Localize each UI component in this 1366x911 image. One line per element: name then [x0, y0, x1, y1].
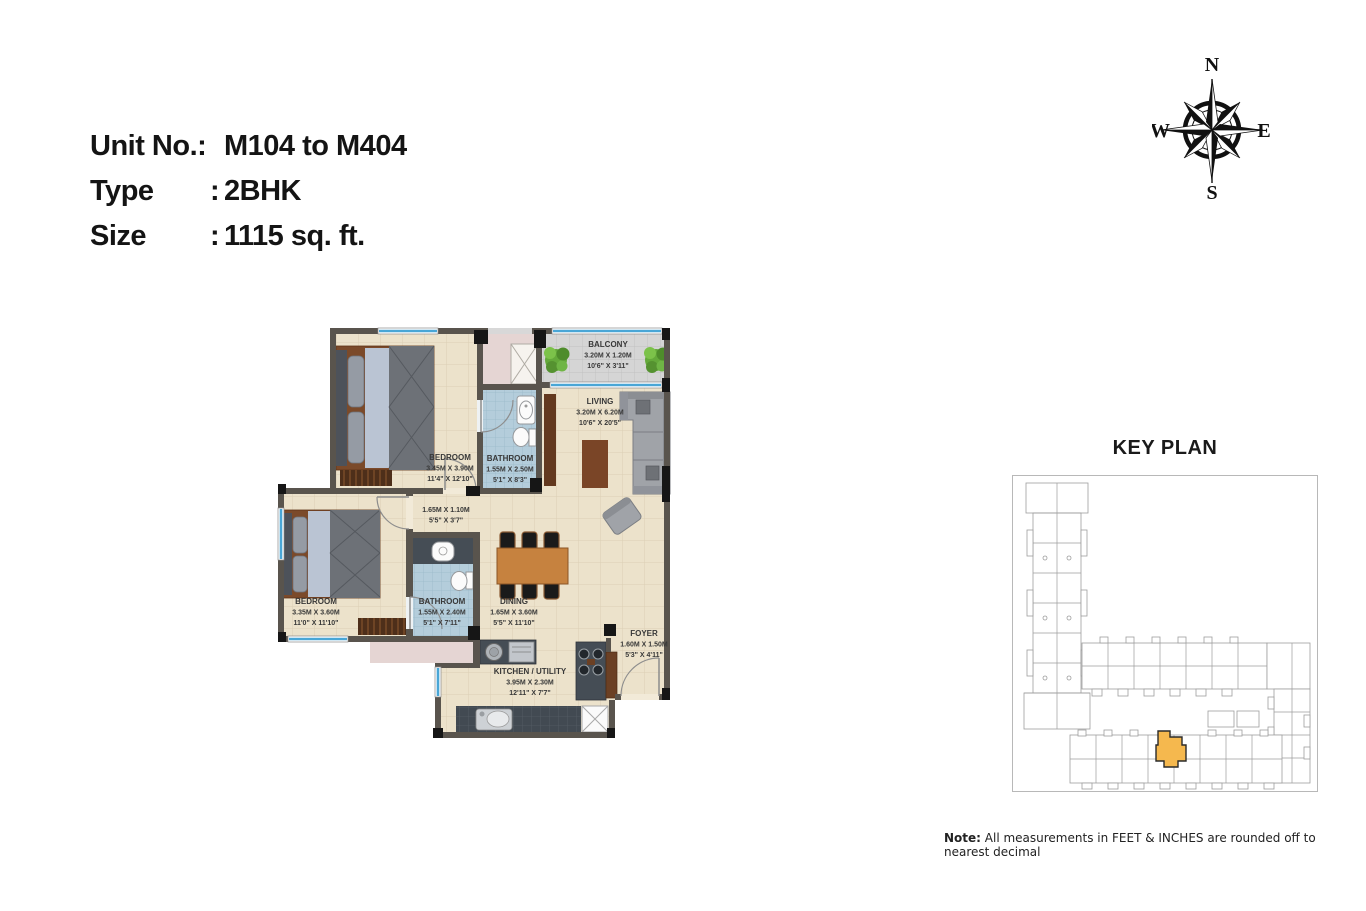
compass-south-label: S	[1206, 182, 1217, 204]
svg-text:11'0" X 11'10": 11'0" X 11'10"	[293, 620, 338, 627]
svg-text:5'5" X 3'7": 5'5" X 3'7"	[429, 518, 463, 525]
room-label-bedroom1: BEDROOM 3.45M X 3.90M 11'4" X 12'10"	[426, 453, 474, 483]
duct-shaft-bottom	[582, 706, 608, 732]
utility-sink	[476, 709, 512, 730]
svg-text:BEDROOM: BEDROOM	[429, 453, 471, 462]
compass-east-label: E	[1257, 120, 1270, 142]
svg-text:3.20M X 1.20M: 3.20M X 1.20M	[584, 353, 632, 360]
svg-text:3.35M X 3.60M: 3.35M X 3.60M	[292, 610, 340, 617]
keyplan-title: KEY PLAN	[1012, 437, 1318, 460]
kitchen-window	[435, 667, 441, 697]
keyplan-left-tower	[1024, 483, 1090, 729]
type-label: Type	[90, 175, 210, 208]
svg-text:5'3" X 4'11": 5'3" X 4'11"	[625, 652, 663, 659]
floor-plan-drawing: BEDROOM 3.45M X 3.90M 11'4" X 12'10" BAT…	[270, 320, 690, 750]
type-row: Type : 2BHK	[90, 175, 407, 220]
room-label-balcony: BALCONY 3.20M X 1.20M 10'6" X 3'11"	[584, 340, 632, 370]
svg-text:KITCHEN / UTILITY: KITCHEN / UTILITY	[494, 667, 567, 676]
compass-west-label: W	[1152, 120, 1170, 142]
page: Unit No.: M104 to M404 Type : 2BHK Size …	[0, 0, 1366, 911]
dining-table	[497, 548, 568, 584]
dining-set	[497, 532, 568, 599]
type-value: 2BHK	[224, 175, 301, 208]
alcove-vent	[488, 328, 532, 334]
duct-shaft-top	[511, 344, 538, 384]
bedroom1-window	[378, 328, 438, 334]
keyplan	[1012, 475, 1318, 797]
size-colon: :	[210, 220, 224, 253]
size-row: Size : 1115 sq. ft.	[90, 220, 407, 265]
svg-text:5'5" X 11'10": 5'5" X 11'10"	[493, 620, 535, 627]
bed-bedroom2	[282, 510, 380, 598]
keyplan-middle-wing	[1082, 637, 1267, 696]
svg-text:BATHROOM: BATHROOM	[487, 454, 534, 463]
svg-text:1.55M X 2.50M: 1.55M X 2.50M	[486, 467, 534, 474]
compass-rose: N S E W	[1152, 55, 1272, 210]
stove-counter	[576, 642, 606, 700]
bedroom2-window-west	[278, 508, 284, 560]
svg-text:BEDROOM: BEDROOM	[295, 597, 337, 606]
tv-cabinet	[544, 394, 556, 486]
svg-text:1.55M X 2.40M: 1.55M X 2.40M	[418, 610, 466, 617]
svg-text:5'1" X 7'11": 5'1" X 7'11"	[423, 620, 461, 627]
plan-header: Unit No.: M104 to M404 Type : 2BHK Size …	[90, 130, 407, 265]
measurement-note: Note: All measurements in FEET & INCHES …	[944, 831, 1364, 859]
wardrobe-bedroom2	[358, 618, 408, 635]
size-value: 1115 sq. ft.	[224, 220, 365, 253]
corridor-floor	[370, 642, 473, 663]
keyplan-highlighted-unit	[1156, 731, 1186, 767]
room-label-bathroom1: BATHROOM 1.55M X 2.50M 5'1" X 8'3"	[486, 454, 534, 484]
svg-text:LIVING: LIVING	[587, 397, 614, 406]
svg-text:3.95M X 2.30M: 3.95M X 2.30M	[506, 680, 554, 687]
svg-text:DINING: DINING	[500, 597, 528, 606]
svg-text:10'6" X 20'5": 10'6" X 20'5"	[579, 420, 621, 427]
compass-rose-icon: N S E W	[1152, 55, 1272, 205]
bedroom2-window-south	[288, 636, 348, 642]
svg-text:BALCONY: BALCONY	[588, 340, 628, 349]
compass-cardinal-points	[1161, 79, 1263, 181]
plant-left	[544, 347, 570, 373]
svg-text:3.45M X 3.90M: 3.45M X 3.90M	[426, 466, 474, 473]
type-colon: :	[210, 175, 224, 208]
keyplan-drawing	[1012, 475, 1318, 792]
svg-text:1.60M X 1.50M: 1.60M X 1.50M	[620, 642, 668, 649]
unit-number-value: M104 to M404	[224, 130, 407, 163]
svg-text:5'1" X 8'3": 5'1" X 8'3"	[493, 477, 527, 484]
kitchen-counter	[480, 640, 536, 664]
svg-text:1.65M X 3.60M: 1.65M X 3.60M	[490, 610, 538, 617]
svg-text:1.65M X 1.10M: 1.65M X 1.10M	[422, 507, 470, 514]
room-label-bedroom2: BEDROOM 3.35M X 3.60M 11'0" X 11'10"	[292, 597, 340, 627]
svg-text:11'4" X 12'10": 11'4" X 12'10"	[427, 476, 472, 483]
unit-number-label: Unit No.:	[90, 130, 210, 163]
keyplan-small-blocks	[1208, 711, 1259, 727]
unit-number-row: Unit No.: M104 to M404	[90, 130, 407, 175]
svg-text:10'6" X 3'11": 10'6" X 3'11"	[587, 363, 629, 370]
room-label-bathroom2: BATHROOM 1.55M X 2.40M 5'1" X 7'11"	[418, 597, 466, 627]
size-label: Size	[90, 220, 210, 253]
svg-text:3.20M X 6.20M: 3.20M X 6.20M	[576, 410, 624, 417]
note-label: Note:	[944, 831, 981, 845]
living-window	[550, 382, 662, 388]
svg-text:12'11" X 7'7": 12'11" X 7'7"	[509, 690, 551, 697]
utility-floor	[456, 706, 581, 732]
svg-text:BATHROOM: BATHROOM	[419, 597, 466, 606]
wardrobe-bedroom1	[340, 470, 392, 486]
svg-text:FOYER: FOYER	[630, 629, 658, 638]
floor-plan: BEDROOM 3.45M X 3.90M 11'4" X 12'10" BAT…	[270, 320, 690, 755]
bed-bedroom1	[336, 346, 434, 470]
balcony-window	[552, 328, 662, 334]
foyer-cabinet	[606, 652, 617, 698]
coffee-table	[582, 440, 608, 488]
note-text: All measurements in FEET & INCHES are ro…	[944, 831, 1316, 859]
compass-north-label: N	[1205, 55, 1220, 76]
